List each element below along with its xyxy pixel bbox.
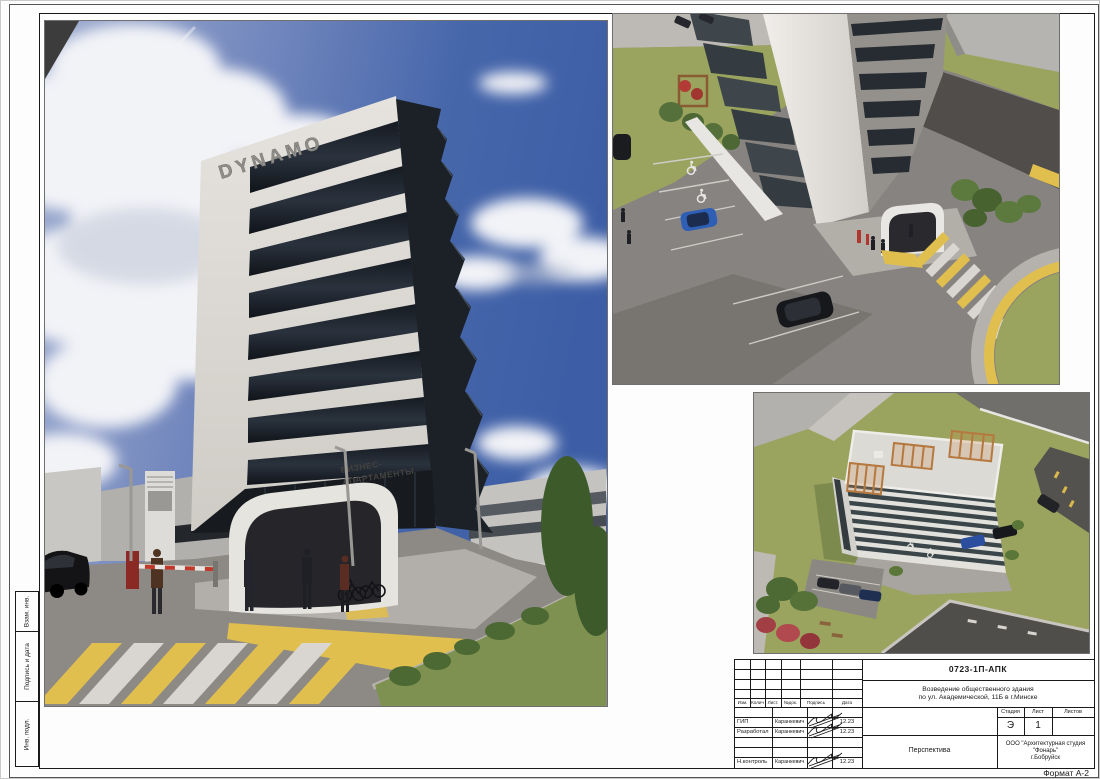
signer-date: 12.23 — [832, 727, 862, 737]
dark-car-edge — [613, 134, 631, 160]
doc-code: 0723-1П-АПК — [862, 660, 1094, 680]
side-label: Инв. подл. — [24, 718, 31, 750]
side-label-cell: Взам. инв. — [15, 591, 39, 631]
stage-col-header: Стадия — [997, 707, 1024, 717]
signer-name: Каранкевич — [773, 717, 809, 727]
render-aerial-view — [753, 392, 1090, 654]
signer-date: 12.23 — [832, 757, 862, 768]
render-main-perspective: DYNAMO БИЗНЕС- АПАРТАМЕНТЫ — [44, 20, 608, 707]
signer-name: Каранкевич — [773, 727, 809, 737]
stage-value: Э — [997, 717, 1024, 735]
change-col-header: Изм. — [735, 698, 750, 707]
change-col-header: Колич — [750, 698, 765, 707]
entrance-canopy — [229, 483, 398, 614]
format-label: Формат А-2 — [951, 768, 1089, 778]
change-col-header: Дата — [832, 698, 862, 707]
change-col-header: №док. — [781, 698, 800, 707]
grid-line — [735, 669, 862, 670]
change-col-header: Подпись — [800, 698, 832, 707]
title-block: Изм. Колич Лист. №док. Подпись Дата ГИП … — [734, 659, 1095, 769]
render-entrance-view — [612, 13, 1060, 385]
drawing-sheet: DYNAMO БИЗНЕС- АПАРТАМЕНТЫ — [0, 0, 1100, 779]
sheets-col-header: Листов — [1052, 707, 1094, 717]
roof-equipment — [874, 451, 883, 458]
signer-role: Н.контроль — [735, 757, 774, 768]
change-col-header: Лист. — [765, 698, 781, 707]
view-title: Перспектива — [862, 735, 997, 768]
signer-date: 12.23 — [832, 717, 862, 727]
signer-role: Разработал — [735, 727, 774, 737]
signer-name: Каранкевич — [773, 757, 809, 768]
sheets-total-value — [1052, 717, 1094, 735]
company-line1: ООО "Архитектурная студия "Фонарь" — [997, 741, 1094, 755]
side-label-cell: Подпись и дата — [15, 631, 39, 701]
grid-line — [735, 737, 862, 738]
company-line2: г.Бобруйск — [1031, 755, 1060, 762]
side-label: Взам. инв. — [24, 596, 31, 628]
grid-line — [735, 689, 862, 690]
grid-line — [832, 660, 833, 768]
side-label: Подпись и дата — [24, 643, 31, 690]
signer-role: ГИП — [735, 717, 774, 727]
project-name: Возведение общественного здания по ул. А… — [862, 680, 1094, 707]
company: ООО "Архитектурная студия "Фонарь" г.Боб… — [997, 735, 1094, 768]
grid-line — [735, 679, 862, 680]
grid-line — [735, 747, 862, 748]
side-label-cell: Инв. подл. — [15, 701, 39, 767]
side-label-strip: Взам. инв. Подпись и дата Инв. подл. — [15, 591, 39, 767]
sheet-col-header: Лист — [1024, 707, 1052, 717]
project-name-line2: по ул. Академической, 11Б в г.Минске — [919, 694, 1038, 702]
sheet-number-value: 1 — [1024, 717, 1052, 735]
project-name-line1: Возведение общественного здания — [922, 686, 1034, 694]
